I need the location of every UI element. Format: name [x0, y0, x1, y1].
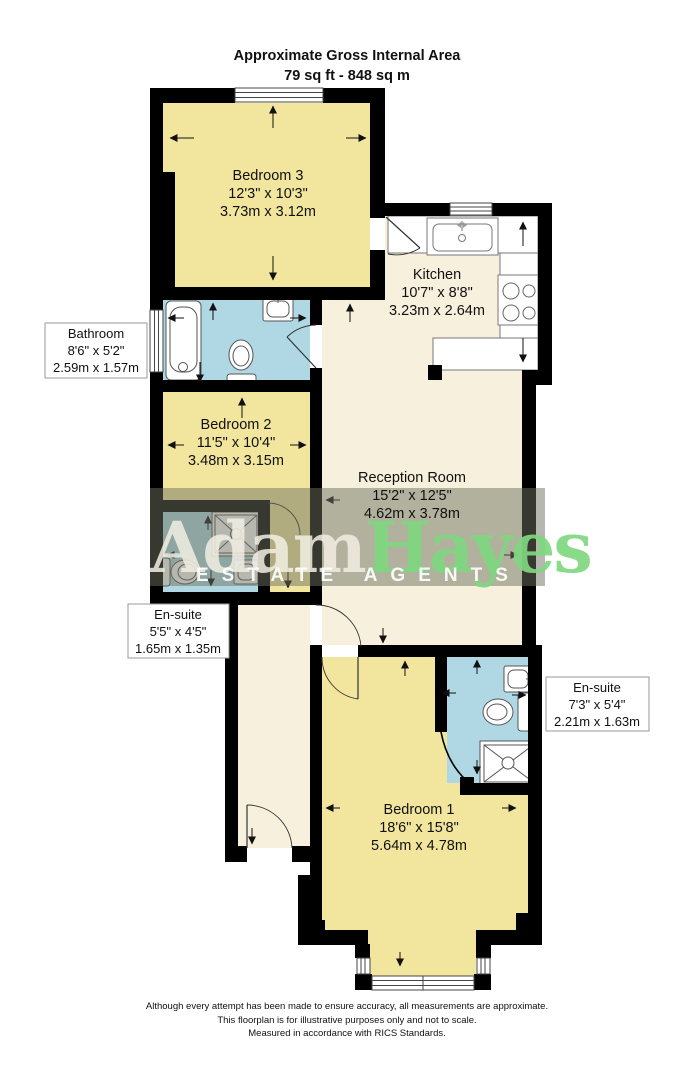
window-bay-left: [357, 958, 370, 974]
label-bedroom2: Bedroom 2 11'5" x 10'4" 3.48m x 3.15m: [188, 417, 284, 469]
svg-text:En-suite: En-suite: [573, 680, 621, 695]
svg-text:8'6" x 5'2": 8'6" x 5'2": [68, 343, 125, 358]
svg-text:11'5" x 10'4": 11'5" x 10'4": [197, 435, 275, 451]
svg-text:10'7" x 8'8": 10'7" x 8'8": [401, 285, 472, 301]
svg-text:Reception Room: Reception Room: [358, 470, 466, 486]
room-bedroom1-bay: [368, 930, 476, 976]
kitchen-sink-icon: [427, 218, 498, 255]
svg-text:1.65m x 1.35m: 1.65m x 1.35m: [135, 641, 221, 656]
label-box-bathroom: Bathroom 8'6" x 5'2" 2.59m x 1.57m: [45, 323, 147, 378]
window-bedroom3: [235, 88, 323, 102]
svg-text:7'3" x 5'4": 7'3" x 5'4": [569, 697, 626, 712]
label-bedroom1: Bedroom 1 18'6" x 15'8" 5.64m x 4.78m: [371, 802, 467, 854]
disclaimer-line3: Measured in accordance with RICS Standar…: [248, 1028, 446, 1039]
window-kitchen: [450, 203, 492, 215]
window-bay-front: [372, 976, 474, 990]
label-bedroom3: Bedroom 3 12'3" x 10'3" 3.73m x 3.12m: [220, 168, 316, 220]
svg-text:2.21m x 1.63m: 2.21m x 1.63m: [554, 714, 640, 729]
svg-text:2.59m x 1.57m: 2.59m x 1.57m: [53, 360, 139, 375]
ensuite-right-sink-icon: [504, 666, 532, 692]
bathroom-sink-icon: [263, 297, 293, 321]
svg-text:Bedroom 3: Bedroom 3: [233, 168, 304, 184]
svg-text:3.48m x 3.15m: 3.48m x 3.15m: [188, 453, 284, 469]
bathroom-toilet-icon: [227, 340, 256, 386]
page-title-line1: Approximate Gross Internal Area: [234, 48, 462, 64]
label-box-ensuite-right: En-suite 7'3" x 5'4" 2.21m x 1.63m: [546, 677, 649, 731]
page-title-line2: 79 sq ft - 848 sq m: [284, 68, 410, 84]
floorplan-page: AdamHayes ESTATE AGENTS Bedroom 3 12'3" …: [0, 0, 694, 1080]
label-reception: Reception Room 15'2" x 12'5" 4.62m x 3.7…: [358, 470, 466, 522]
header: Approximate Gross Internal Area 79 sq ft…: [234, 48, 462, 84]
disclaimer-line2: This floorplan is for illustrative purpo…: [217, 1015, 476, 1026]
window-bathroom: [150, 310, 163, 372]
svg-text:Bedroom 1: Bedroom 1: [384, 802, 455, 818]
svg-text:5'5" x 4'5": 5'5" x 4'5": [150, 624, 207, 639]
label-box-ensuite-left: En-suite 5'5" x 4'5" 1.65m x 1.35m: [128, 604, 229, 658]
window-bay-right: [477, 958, 490, 974]
bathtub-icon: [166, 301, 201, 380]
svg-text:3.23m x 2.64m: 3.23m x 2.64m: [389, 303, 485, 319]
svg-text:4.62m x 3.78m: 4.62m x 3.78m: [364, 506, 460, 522]
disclaimer-line1: Although every attempt has been made to …: [146, 1001, 548, 1012]
kitchen-counter-bottom: [433, 338, 538, 370]
room-hallway: [238, 605, 310, 848]
svg-text:12'3" x 10'3": 12'3" x 10'3": [228, 186, 308, 202]
svg-text:Kitchen: Kitchen: [413, 267, 461, 283]
svg-text:Bedroom 2: Bedroom 2: [201, 417, 272, 433]
hob-icon: [498, 275, 538, 325]
floorplan-svg: AdamHayes ESTATE AGENTS Bedroom 3 12'3" …: [0, 0, 694, 1080]
svg-text:3.73m x 3.12m: 3.73m x 3.12m: [220, 204, 316, 220]
svg-text:15'2" x 12'5": 15'2" x 12'5": [372, 488, 452, 504]
footer: Although every attempt has been made to …: [146, 1001, 548, 1039]
svg-text:5.64m x 4.78m: 5.64m x 4.78m: [371, 838, 467, 854]
watermark-tagline: ESTATE AGENTS: [196, 565, 521, 586]
watermark: AdamHayes ESTATE AGENTS: [149, 488, 591, 589]
svg-text:En-suite: En-suite: [154, 607, 202, 622]
svg-text:Bathroom: Bathroom: [68, 326, 124, 341]
svg-text:18'6" x 15'8": 18'6" x 15'8": [379, 820, 459, 836]
